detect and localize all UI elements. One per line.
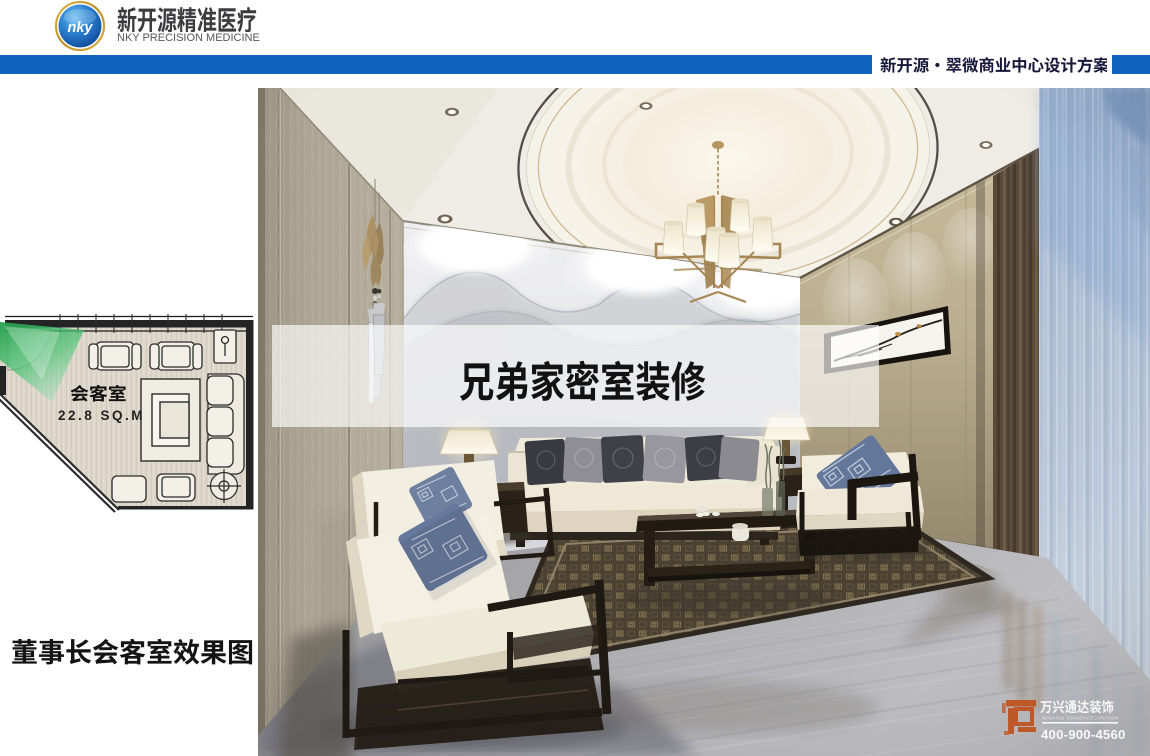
svg-text:22.8 SQ.M: 22.8 SQ.M xyxy=(58,408,145,423)
svg-text:400-900-4560: 400-900-4560 xyxy=(1041,727,1126,742)
svg-text:nky: nky xyxy=(68,20,94,36)
svg-text:WANXING TONGDA DECORATION: WANXING TONGDA DECORATION xyxy=(1042,716,1119,721)
